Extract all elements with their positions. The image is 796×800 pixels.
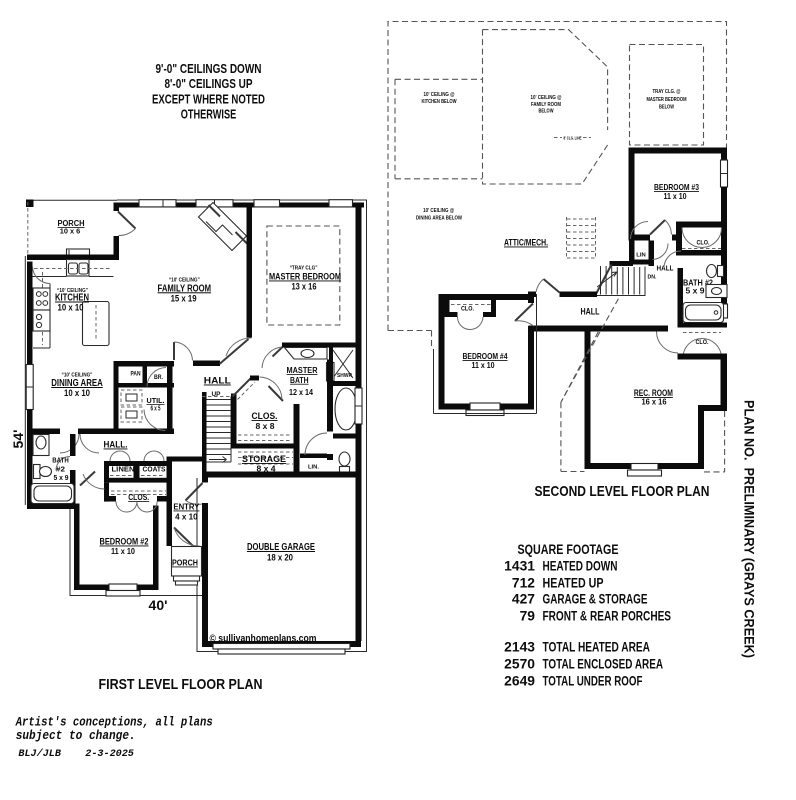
svg-text:6 x 5: 6 x 5 bbox=[151, 406, 161, 413]
svg-text:40': 40' bbox=[149, 597, 168, 613]
svg-text:8 x 8: 8 x 8 bbox=[256, 421, 275, 431]
svg-text:12 x 14: 12 x 14 bbox=[289, 387, 313, 397]
svg-text:MASTER: MASTER bbox=[287, 366, 318, 375]
svg-text:2570: 2570 bbox=[504, 657, 535, 672]
svg-text:TOTAL HEATED AREA: TOTAL HEATED AREA bbox=[543, 640, 651, 655]
svg-text:10 x 10: 10 x 10 bbox=[64, 388, 90, 398]
svg-text:13 x 16: 13 x 16 bbox=[292, 282, 317, 292]
svg-text:HALL: HALL bbox=[204, 376, 231, 387]
svg-text:PORCH: PORCH bbox=[172, 558, 198, 568]
svg-text:2649: 2649 bbox=[504, 674, 535, 689]
svg-text:MASTER BEDROOM: MASTER BEDROOM bbox=[269, 272, 341, 282]
svg-text:11 x 10: 11 x 10 bbox=[472, 361, 495, 370]
svg-text:4 x 10: 4 x 10 bbox=[175, 513, 198, 522]
svg-text:8'-0" CEILINGS UP: 8'-0" CEILINGS UP bbox=[165, 77, 253, 91]
svg-text:BR.: BR. bbox=[154, 375, 163, 381]
svg-text:ENTRY: ENTRY bbox=[173, 502, 199, 512]
svg-text:15 x 19: 15 x 19 bbox=[171, 293, 197, 303]
svg-text:HEATED UP: HEATED UP bbox=[543, 576, 604, 591]
svg-text:LIN: LIN bbox=[636, 253, 646, 259]
svg-text:8' CLG. LINE: 8' CLG. LINE bbox=[564, 136, 582, 141]
svg-text:SHWR: SHWR bbox=[337, 373, 352, 379]
svg-text:BATH: BATH bbox=[290, 376, 309, 385]
svg-text:CLO.: CLO. bbox=[696, 340, 709, 346]
svg-text:EXCEPT WHERE NOTED: EXCEPT WHERE NOTED bbox=[152, 93, 265, 107]
svg-text:DINING AREA BELOW: DINING AREA BELOW bbox=[416, 216, 463, 222]
svg-text:10' CEILING @: 10' CEILING @ bbox=[531, 95, 563, 101]
svg-text:ATTIC/MECH.: ATTIC/MECH. bbox=[504, 238, 548, 248]
svg-text:BEDROOM #4: BEDROOM #4 bbox=[463, 351, 508, 361]
svg-text:HALL: HALL bbox=[581, 307, 600, 317]
svg-text:CLO.: CLO. bbox=[697, 241, 710, 247]
svg-text:UP: UP bbox=[212, 392, 221, 398]
svg-text:BATH: BATH bbox=[52, 456, 69, 465]
svg-text:10' CEILING @: 10' CEILING @ bbox=[423, 208, 455, 214]
svg-text:FAMILY ROOM: FAMILY ROOM bbox=[531, 102, 561, 108]
svg-text:SECOND LEVEL FLOOR PLAN: SECOND LEVEL FLOOR PLAN bbox=[535, 483, 710, 500]
svg-text:11 x 10: 11 x 10 bbox=[111, 546, 135, 556]
svg-text:HALL: HALL bbox=[657, 264, 674, 273]
svg-text:KITCHEN BELOW: KITCHEN BELOW bbox=[422, 99, 458, 105]
svg-text:COATS: COATS bbox=[143, 467, 166, 474]
svg-text:HEATED DOWN: HEATED DOWN bbox=[543, 559, 618, 574]
svg-text:BELOW: BELOW bbox=[539, 109, 555, 115]
svg-text:5 x 9: 5 x 9 bbox=[686, 287, 706, 296]
svg-text:TOTAL ENCLOSED AREA: TOTAL ENCLOSED AREA bbox=[543, 657, 664, 672]
svg-text:TOTAL UNDER ROOF: TOTAL UNDER ROOF bbox=[543, 674, 643, 689]
svg-text:CLOS.: CLOS. bbox=[128, 493, 149, 502]
svg-text:11 x 10: 11 x 10 bbox=[664, 192, 687, 201]
svg-text:5 x 9: 5 x 9 bbox=[54, 473, 69, 482]
svg-text:STORAGE: STORAGE bbox=[242, 454, 286, 464]
svg-text:BELOW: BELOW bbox=[659, 105, 675, 111]
svg-text:GARAGE & STORAGE: GARAGE & STORAGE bbox=[543, 592, 648, 607]
svg-text:1431: 1431 bbox=[504, 559, 535, 574]
svg-text:16 x 16: 16 x 16 bbox=[642, 397, 667, 407]
svg-text:CLOS.: CLOS. bbox=[252, 411, 278, 421]
svg-text:427: 427 bbox=[512, 592, 535, 607]
svg-text:2143: 2143 bbox=[504, 640, 535, 655]
svg-text:10 x 6: 10 x 6 bbox=[60, 227, 81, 236]
svg-text:PLAN NO. PRELIMINARY (GRAYS C: PLAN NO. PRELIMINARY (GRAYS CREEK) bbox=[742, 400, 758, 658]
svg-text:BEDROOM #3: BEDROOM #3 bbox=[654, 182, 699, 192]
svg-text:79: 79 bbox=[520, 609, 535, 624]
svg-text:54': 54' bbox=[10, 430, 26, 449]
svg-text:HALL.: HALL. bbox=[104, 440, 128, 450]
svg-text:DN.: DN. bbox=[648, 275, 657, 281]
svg-text:18 x 20: 18 x 20 bbox=[267, 553, 293, 563]
svg-text:MASTER BEDROOM: MASTER BEDROOM bbox=[647, 97, 687, 103]
svg-text:10 x 10: 10 x 10 bbox=[58, 303, 84, 313]
svg-text:712: 712 bbox=[512, 576, 535, 591]
svg-text:BEDROOM #2: BEDROOM #2 bbox=[100, 537, 149, 547]
svg-text:FRONT & REAR PORCHES: FRONT & REAR PORCHES bbox=[543, 609, 672, 624]
svg-text:SQUARE FOOTAGE: SQUARE FOOTAGE bbox=[518, 542, 619, 557]
svg-text:LINEN: LINEN bbox=[112, 467, 135, 474]
svg-text:subject to change.: subject to change. bbox=[16, 729, 136, 743]
svg-text:UTIL.: UTIL. bbox=[147, 396, 165, 405]
svg-text:CLO.: CLO. bbox=[461, 307, 474, 313]
svg-text:TRAY CLG. @: TRAY CLG. @ bbox=[653, 89, 681, 95]
svg-text:BLJ/JLB 2-3-2025: BLJ/JLB 2-3-2025 bbox=[18, 748, 134, 760]
svg-text:FIRST LEVEL FLOOR PLAN: FIRST LEVEL FLOOR PLAN bbox=[99, 676, 263, 693]
svg-text:OTHERWISE: OTHERWISE bbox=[181, 108, 237, 122]
svg-text:Artist's conceptions, all plan: Artist's conceptions, all plans bbox=[15, 716, 213, 730]
svg-text:DOUBLE GARAGE: DOUBLE GARAGE bbox=[247, 542, 315, 553]
svg-text:PAN: PAN bbox=[131, 372, 141, 378]
svg-text:© sullivanhomeplans.com: © sullivanhomeplans.com bbox=[210, 633, 317, 645]
svg-text:10' CEILING @: 10' CEILING @ bbox=[424, 92, 456, 98]
svg-text:LIN.: LIN. bbox=[308, 465, 319, 471]
svg-text:9'-0" CEILINGS DOWN: 9'-0" CEILINGS DOWN bbox=[156, 62, 262, 76]
